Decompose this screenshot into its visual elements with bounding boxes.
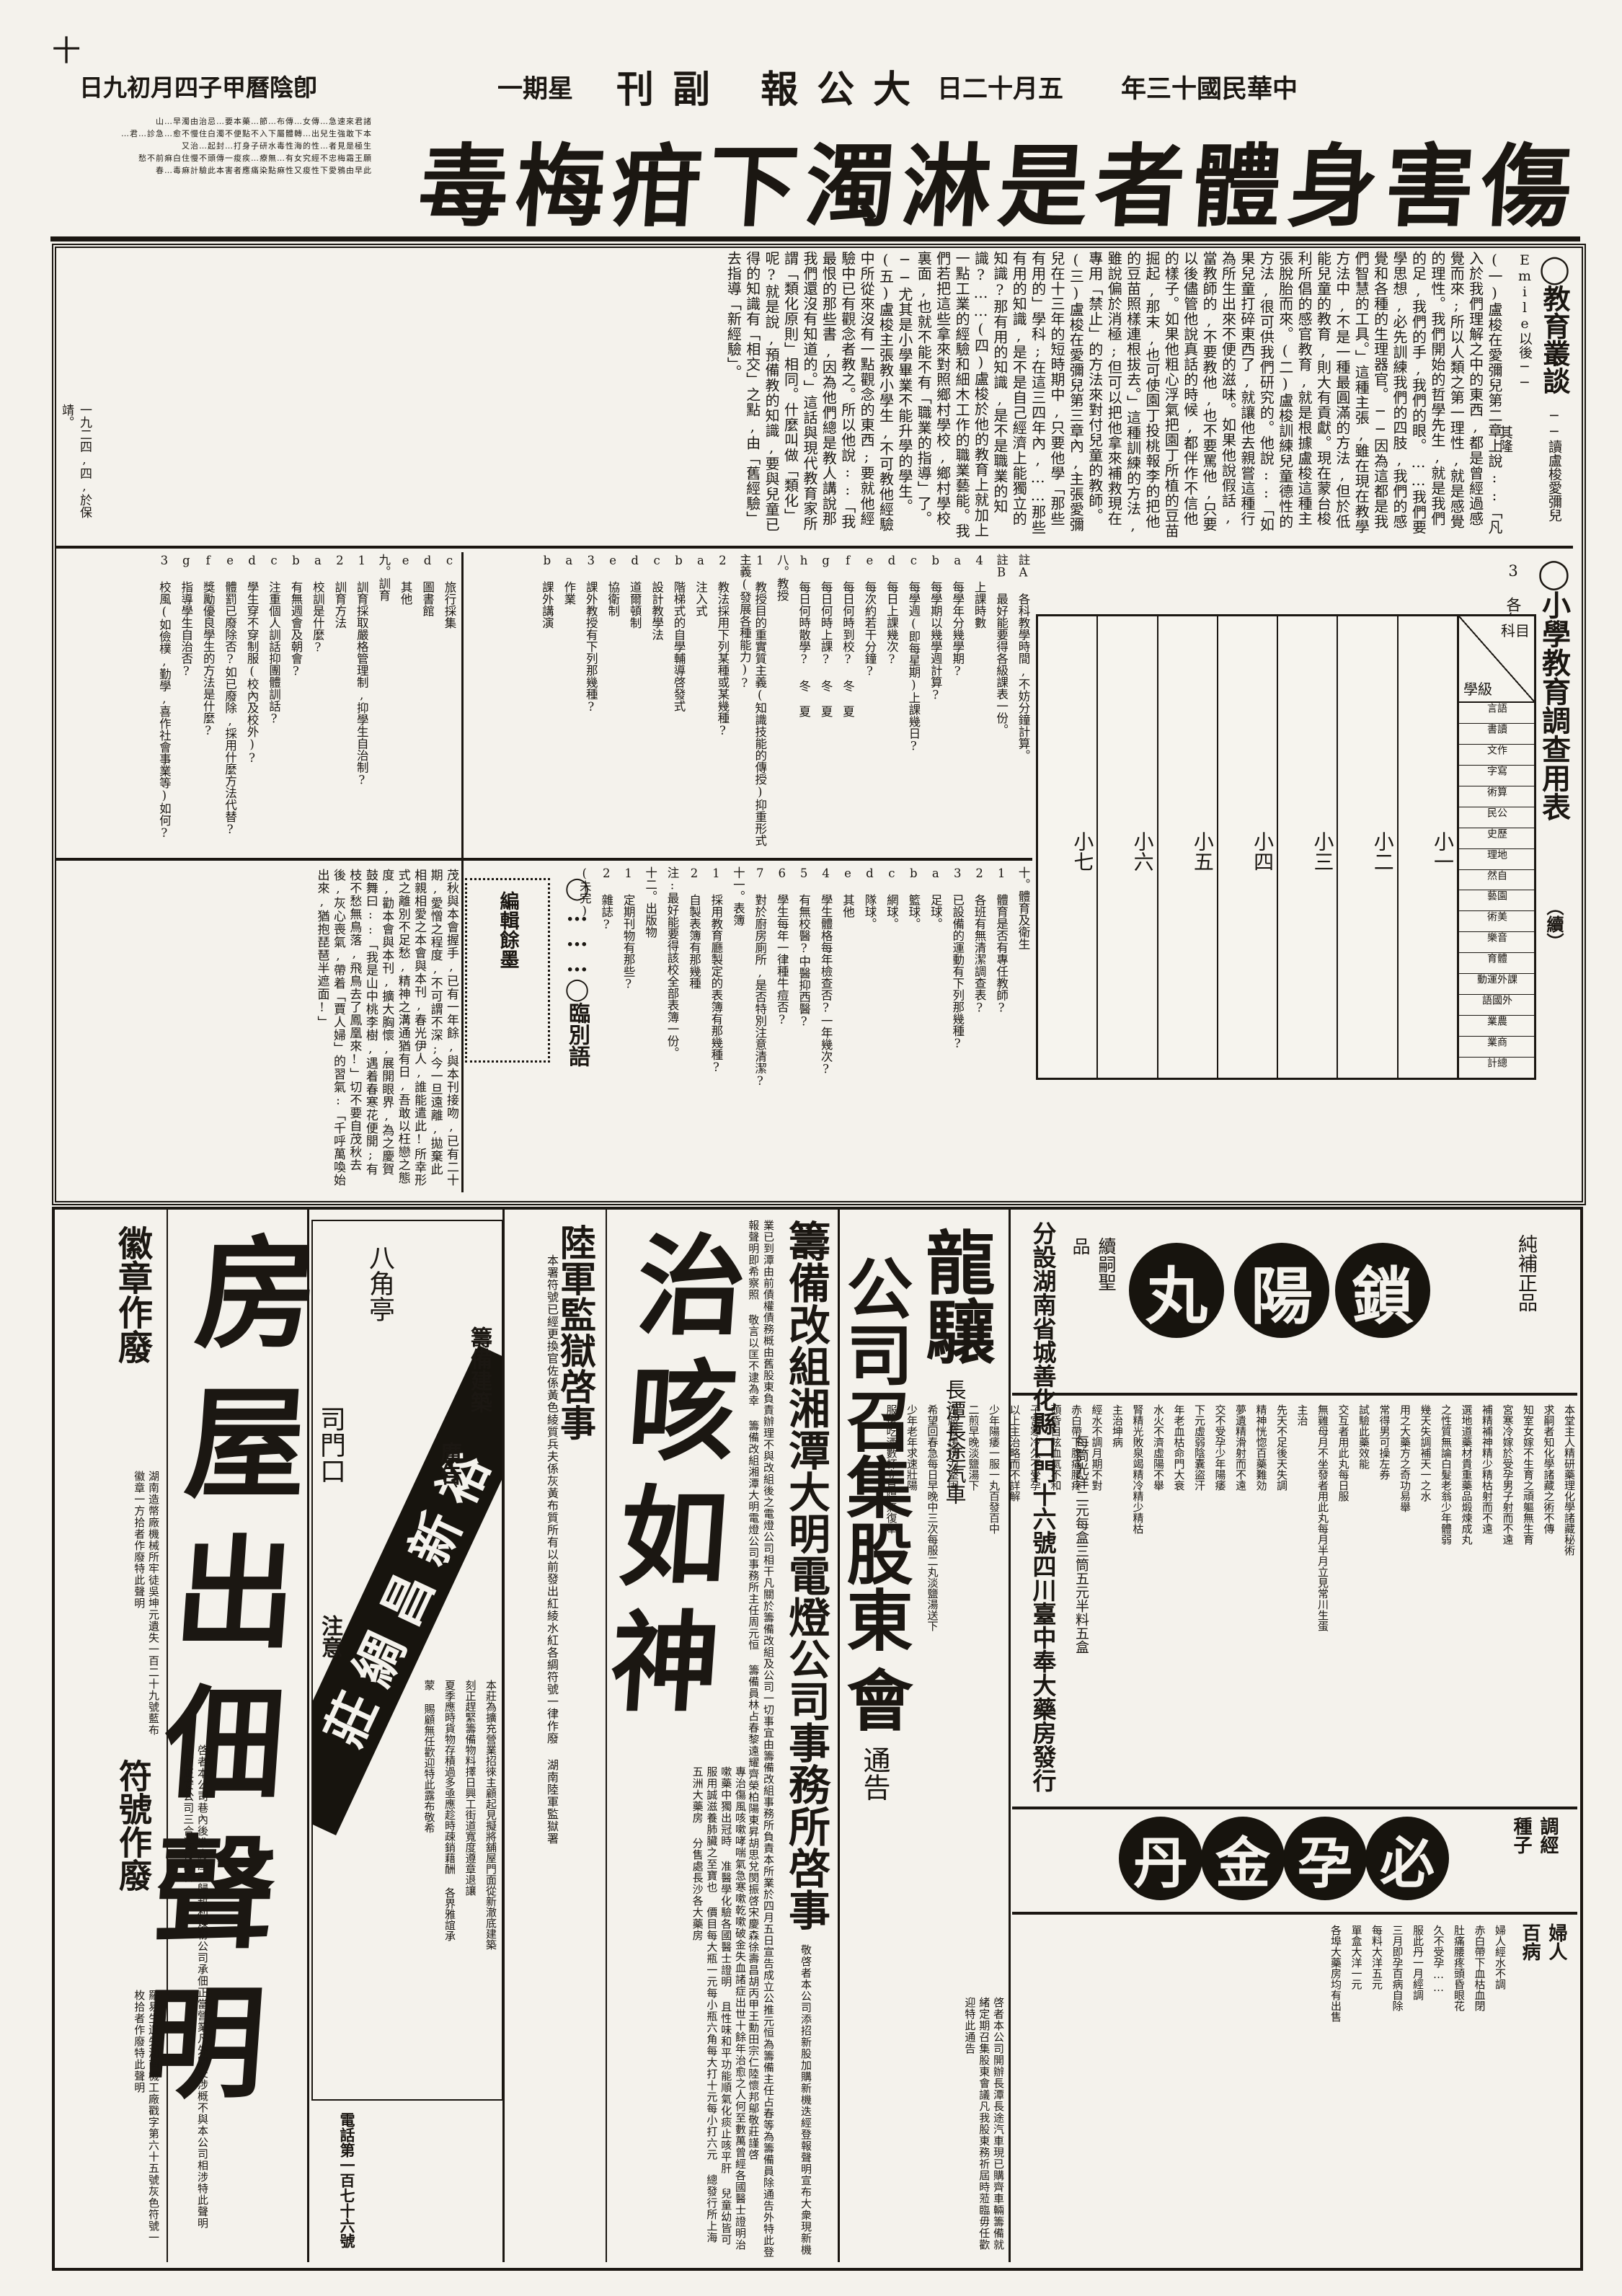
- question-line: 1 訓育採取嚴格管理制,抑學生自治制?: [354, 554, 369, 852]
- survey-title-text: ◯小學教育調查用表: [1537, 557, 1571, 821]
- biyun-circle-4: 丹: [1119, 1817, 1202, 1900]
- survey-table-subject-column: 科目 學級 語言讀書作文寫字算術公民歷史地理自然園藝美術音樂體育課外運動外國語農…: [1457, 616, 1534, 1078]
- badge-title: 徽章作廢: [114, 1225, 157, 1456]
- grade-column: 小四: [1217, 616, 1277, 1078]
- zhike-price: 價目每大瓶一元每小瓶六角每大打十元每小打六元: [705, 1907, 718, 2160]
- subject-cell: 音樂: [1459, 931, 1534, 952]
- question-line: e 每次約若干分鐘?: [862, 554, 877, 852]
- subject-cell: 美術: [1459, 910, 1534, 931]
- ad-text-column: 幾天失調補天一之水: [1418, 1404, 1432, 1799]
- longxiang-notice: 通告: [859, 1746, 890, 1801]
- biyun-circle-1: 必: [1365, 1817, 1449, 1900]
- ads-rule-2: [838, 1210, 840, 2262]
- question-line: b 課外講演: [539, 554, 554, 852]
- ad-text-column: 單盒大洋一元: [1349, 1925, 1363, 2256]
- zhike-body: 專治傷風咳嗽哮喘氣急寒嗽乾嗽破金失血諸症出世十餘年治愈之人何至數萬曾經各國醫士證…: [611, 1766, 747, 2251]
- question-line: 3 校風(如儉樸,勤學,喜作社會事業等)如何?: [156, 554, 172, 852]
- question-line: d 道爾頓制: [627, 554, 642, 852]
- subject-cell: 外國語: [1459, 994, 1534, 1015]
- question-line: 十。體育及衛生: [1016, 866, 1031, 1188]
- question-line: 2 各班有無清潔調查表?: [972, 866, 987, 1188]
- question-line: 2 雜誌?: [598, 866, 613, 1188]
- ad-text-column: 本莊為擴充營業招徠主顧起見擬將舖屋門面從新澈底建築: [484, 1680, 498, 2083]
- question-line: 6 學生每年一律種牛痘否?: [774, 866, 789, 1188]
- subject-cell: 自然: [1459, 869, 1534, 890]
- question-line: a 作業: [561, 554, 576, 852]
- prison-sign: 湖南陸軍監獄署: [545, 1759, 559, 1845]
- survey-cont: （續）: [1543, 898, 1564, 950]
- longxiang-title-left: 公司召集股東 會 通告: [842, 1254, 923, 1982]
- era-date: 中華民國十三年: [1121, 68, 1298, 105]
- suoyang-body: 本堂主人精研藥理化學諸藏秘術求嗣者知化學諸藏之術不傳知室女嫁不生育之頑軀無生育宮…: [1120, 1404, 1576, 1799]
- yuxinchang-right-label: 籌備建築: [467, 1326, 495, 1528]
- banner-bottom-rule: [50, 236, 1580, 241]
- ad-text-column: 服此丹一月經調: [1411, 1925, 1425, 2256]
- yuxinchang-loc-top: 八角亭: [369, 1244, 398, 1410]
- ad-text-column: 先天不足後天失調: [1275, 1404, 1289, 1799]
- suoyang-circle-2: 陽: [1234, 1243, 1329, 1338]
- subject-cell: 商業: [1459, 1036, 1534, 1057]
- question-line: 4 上課時數: [972, 554, 987, 852]
- question-line: b 有無週會及朝會?: [288, 554, 303, 852]
- ad-text-column: 交不受孕少年陽痿: [1213, 1404, 1227, 1799]
- column-rule-left: [461, 552, 464, 1192]
- question-line: 註A 各科教學時間,不妨分鐘計算。: [1016, 554, 1031, 852]
- pill-char: 必: [1380, 1819, 1435, 1898]
- lunar-date: 卽陰曆甲子四月初九日: [79, 68, 317, 103]
- pill-char: 丹: [1133, 1819, 1188, 1898]
- corner-label-grade: 學級: [1463, 678, 1492, 699]
- masthead: 大公報 副刊: [616, 59, 929, 113]
- question-line: 2 訓育方法: [332, 554, 347, 852]
- biyun-circle-2: 孕: [1283, 1817, 1367, 1900]
- question-line: c 網球。: [884, 866, 899, 1188]
- ad-text-column: 無雞母月不坐發者用此丸每月半月立見常川生蛋: [1316, 1404, 1330, 1799]
- subject-cell: 算術: [1459, 786, 1534, 807]
- ad-text-column: 本堂主人精研藥理化學諸藏秘術: [1562, 1404, 1577, 1799]
- article-title-block: ◯教育叢談 ──讀盧梭愛彌兒Emile以後── 其隆: [1508, 252, 1574, 541]
- ad-text-column: 主治坤病: [1110, 1404, 1125, 1799]
- subject-cell: 作文: [1459, 744, 1534, 765]
- suoyang-tag-left: 續嗣聖品: [1061, 1237, 1119, 1295]
- ad-text-column: 年老血枯命門大衰: [1171, 1404, 1186, 1799]
- question-line: h 每日何時散學? 冬 夏: [796, 554, 811, 852]
- yuxinchang-right-label2: 廣告: [440, 1442, 464, 1543]
- banner-side-ad-line: 愁不前痳白住慢不頭傳一痠疾…療無…有女究經不忠梅霜王願: [48, 152, 372, 164]
- newspaper-page: 十 卽陰曆甲子四月初九日 星期一 大公報 副刊 五月十二日 中華民國十三年 傷害…: [0, 0, 1622, 2296]
- question-line: 3 已設備的運動有下列那幾種?: [949, 866, 965, 1188]
- suoyang-price: 每筒光洋二元每盒三筒五元半料五盒: [1064, 1435, 1091, 1795]
- survey-title: ◯小學教育調查用表 （續）: [1531, 557, 1574, 1083]
- question-line: b 每學期以幾學週計算?: [928, 554, 943, 852]
- question-line: 1 體育是否有專任教師?: [993, 866, 1009, 1188]
- pill-char: 孕: [1298, 1819, 1352, 1898]
- article-date-sign: 一九二四,四,於保靖。: [72, 404, 94, 541]
- question-line: a 注入式: [693, 554, 708, 852]
- ad-text-column: 之性質無論白髮老翁少年體弱: [1439, 1404, 1453, 1799]
- ad-text-column: 求嗣者知化學諸藏之術不傳: [1541, 1404, 1556, 1799]
- survey-table: 科目 學級 語言讀書作文寫字算術公民歷史地理自然園藝美術音樂體育課外運動外國語農…: [1036, 614, 1536, 1080]
- question-line: 十二。出版物: [642, 866, 657, 1188]
- survey-table-subjects: 語言讀書作文寫字算術公民歷史地理自然園藝美術音樂體育課外運動外國語農業商業總計: [1459, 703, 1534, 1078]
- longxiang-subtitle: 長潭長途汽車: [942, 1379, 967, 1504]
- women-body: 婦人經水不調赤白帶下血枯血閉肚痛腰疼頭昏眼花久不受孕……服此丹一月經調三月即孕百…: [1016, 1925, 1507, 2256]
- subject-cell: 園藝: [1459, 890, 1534, 910]
- ad-text-column: 夏季應時貨物存積過多亟應趁時疎銷藉酬 各界雅誼承: [443, 1680, 457, 2083]
- question-line: c 旅行採集: [442, 554, 457, 852]
- corner-label-subject: 科目: [1501, 619, 1530, 640]
- ad-text-column: 選地道藥材貴重藥品煅煉成丸: [1459, 1404, 1473, 1799]
- yuxinchang-phone: 電話第一百七十六號: [320, 2112, 358, 2256]
- longxiang-body: 啓者本公司開辦長潭長途汽車現已購齊車輛籌備就緒定期召集股東會議凡我股東務祈屆時蒞…: [842, 1997, 1005, 2256]
- ad-text-column: 精神恍惚百藥難効: [1254, 1404, 1268, 1799]
- question-line: g 指導學生自治否?: [178, 554, 193, 852]
- pill-char: 鎖: [1352, 1246, 1414, 1336]
- grade-column: 小三: [1277, 616, 1337, 1078]
- ad-text-column: 每料大洋五元: [1370, 1925, 1384, 2256]
- question-line: a 每學年分幾學期?: [949, 554, 965, 852]
- banner-side-ad-text: 山…早濁由治忌…要本藥…節…布傳…女傳…急速來君諸君…診急…愈不慢住白濁不便點不…: [48, 115, 372, 234]
- ad-text-column: 下元虛弱陰囊盜汗: [1192, 1404, 1207, 1799]
- longxiang-title3: 會: [836, 1666, 913, 1732]
- ad-text-column: 腎精光敗泉竭精冷精少精枯: [1130, 1404, 1145, 1799]
- ad-text-column: 蒙 賜顧無任歡迎特此露布敬希: [422, 1680, 436, 2083]
- subject-cell: 歷史: [1459, 828, 1534, 848]
- question-line: 1 採用教育廳製定的表簿有那幾種?: [708, 866, 723, 1188]
- prison-body-text: 本署符號已經更換官佐係黃色綾質兵夫係灰黃布質所有以前發出紅綾水紅各綢符號一律作廢: [545, 1254, 559, 1745]
- question-line: c 注重個人訓話抑團體訓話?: [266, 554, 281, 852]
- prison-body: 本署符號已經更換官佐係黃色綾質兵夫係灰黃布質所有以前發出紅綾水紅各綢符號一律作廢…: [508, 1254, 559, 1903]
- banner-side-ad-line: 山…早濁由治忌…要本藥…節…布傳…女傳…急速來君諸: [48, 115, 372, 128]
- questions-right: 註A 各科教學時間,不妨分鐘計算。註B 最好能要得各級課表一份。4 上課時數a …: [466, 554, 1031, 852]
- ad-text-column: 主治: [1295, 1404, 1309, 1799]
- grade-column: 小二: [1337, 616, 1396, 1078]
- survey-table-grade-columns: 小一小二小三小四小五小六小七: [1038, 616, 1457, 1078]
- subject-cell: 課外運動: [1459, 973, 1534, 994]
- biyun-rule-top: [1012, 1807, 1577, 1809]
- longxiang-title-right: 龍驤 長潭長途汽車: [924, 1227, 1005, 1919]
- suoyang-tag-right: 純補正品: [1507, 1234, 1540, 1349]
- editor-notes-label: 編輯餘墨: [494, 891, 522, 1050]
- question-line: 3 課外教授有下列那幾種?: [583, 554, 598, 852]
- band-rule-2: [56, 858, 1032, 861]
- fuhao-title: 符號作廢: [114, 1759, 157, 1975]
- question-line: a 校訓是什麼?: [310, 554, 325, 852]
- question-line: f 獎勵優良學生的方法是什麼?: [200, 554, 216, 852]
- question-line: b 籃球。: [905, 866, 921, 1188]
- prison-title: 陸軍監獄啓事: [561, 1224, 601, 1556]
- article-title: ◯教育叢談: [1538, 252, 1571, 394]
- banner-side-ad-line: 春…毒痳計驗此本害者應痛染點痳性又痠性下愛鴉由早此: [48, 164, 372, 177]
- ad-text-column: 交互者用此丸每日服: [1336, 1404, 1350, 1799]
- banner-side-ad-line: 君…診急…愈不慢住白濁不便點不入下屬體轉…出兒生強敢下本…: [48, 128, 372, 140]
- farewell-title: ◯………◯臨別語: [552, 876, 593, 1179]
- banner-side-ad-line: 又治…起封…打身子研水毒性海的性…者見是極生: [48, 140, 372, 152]
- question-line: d 圖書館: [420, 554, 435, 852]
- daming-title: 籌備改組湘潭大明電燈公司事務所啓事: [781, 1220, 830, 1931]
- ad-text-column: 肚痛腰疼頭昏眼花: [1452, 1925, 1466, 2256]
- ads-rule-1: [1009, 1210, 1011, 2262]
- question-line: d 每日上課幾次?: [884, 554, 899, 852]
- ad-text-column: 三月即孕百病自除: [1390, 1925, 1404, 2256]
- ad-text-column: 久不受孕……: [1431, 1925, 1445, 2256]
- question-line: c 設計教學法: [649, 554, 664, 852]
- question-line: 注:最好能要得該校全部表簿一份。: [665, 866, 680, 1188]
- question-line: 1 教授目的重實質主義(知識技能的傳授)抑重形式主義(發展各種能力)?: [737, 554, 768, 852]
- question-line: c 每學週(即每星期)上課幾日?: [905, 554, 921, 852]
- question-line: 九。訓育: [376, 554, 391, 852]
- editor-notes-box: 編輯餘墨: [465, 878, 550, 1063]
- ad-text-column: 宮寒冷嫁於受孕男子射而不遠: [1500, 1404, 1515, 1799]
- biyun-circle-3: 金: [1201, 1817, 1285, 1900]
- ad-text-column: 知室女嫁不生育之頑軀無生育: [1521, 1404, 1535, 1799]
- question-line: 2 自製表簿有那幾種: [686, 866, 701, 1188]
- question-line: a 足球。: [928, 866, 943, 1188]
- suoyang-circle-3: 丸: [1129, 1243, 1224, 1338]
- question-line: 5 有無校醫?中醫抑西醫?: [796, 866, 811, 1188]
- longxiang-name: 龍驤: [914, 1227, 996, 1365]
- band-rule-1: [56, 546, 1573, 549]
- question-line: e 其他: [398, 554, 413, 852]
- subject-cell: 體育: [1459, 952, 1534, 973]
- subject-cell: 讀書: [1459, 723, 1534, 744]
- badge-body: 湖南造幣廠機械所牢徒吳坤元遺失一百二十九號藍布徽章一方拾者作廢特此聲明: [110, 1471, 160, 1745]
- question-line: 十一。表簿: [730, 866, 745, 1188]
- ad-text-column: 婦人經水不調: [1493, 1925, 1507, 2256]
- subject-cell: 農業: [1459, 1015, 1534, 1036]
- pill-char: 丸: [1145, 1246, 1207, 1336]
- question-line: e 協衛制: [605, 554, 620, 852]
- ads-rule-6: [167, 1210, 168, 2262]
- weekday: 星期一: [497, 68, 573, 105]
- pill-char: 金: [1215, 1819, 1270, 1898]
- questions-left: c 旅行採集d 圖書館e 其他九。訓育1 訓育採取嚴格管理制,抑學生自治制?2 …: [65, 554, 457, 852]
- ad-text-column: 赤白帶下血枯血閉: [1472, 1925, 1486, 2256]
- ad-text-column: 各埠大藥房均有出售: [1329, 1925, 1343, 2256]
- ad-text-column: 試驗此藥效能: [1357, 1404, 1371, 1799]
- yuxinchang-body: 本莊為擴充營業招徠主顧起見擬將舖屋門面從新澈底建築刻正趕緊籌備物料擇日興工街道寬…: [365, 1680, 497, 2083]
- ad-text-column: 夢遺精滑射而不遠: [1233, 1404, 1248, 1799]
- grade-column: 小五: [1157, 616, 1217, 1078]
- yuxinchang-attention: 注意: [319, 1615, 345, 1701]
- suoyang-circle-1: 鎖: [1335, 1243, 1430, 1338]
- longxiang-title2: 公司召集股東: [836, 1254, 913, 1652]
- ad-text-column: 刻正趕緊籌備物料擇日興工街道寬度遵章退讓: [463, 1680, 477, 2083]
- question-line: 1 定期刊物有那些?: [621, 866, 636, 1188]
- question-line: g 每日何時上課? 冬 夏: [818, 554, 833, 852]
- daming-ad: 籌備改組湘潭大明電燈公司事務所啓事 敬啓者本公司添招新股加購新機迭經登報聲明宣布…: [750, 1220, 836, 2261]
- subject-cell: 地理: [1459, 848, 1534, 869]
- ads-rule-3: [606, 1210, 607, 2262]
- subject-cell: 公民: [1459, 807, 1534, 828]
- ad-text-column: 補精補神精少精枯射而不遠: [1480, 1404, 1494, 1799]
- biyun-rule-bottom: [1012, 1912, 1577, 1915]
- issue-date: 五月十二日: [937, 68, 1063, 105]
- suoyang-distributor: 分設湖南省城善化縣口門十六號四川臺中奉大藥房發行: [1015, 1221, 1060, 1807]
- question-line: 2 教法採用下列某種或某幾種?: [714, 554, 730, 852]
- question-line: d 學生穿不穿制服(校內及校外)?: [244, 554, 260, 852]
- question-line: e 其他: [840, 866, 855, 1188]
- question-line: 八。教授: [774, 554, 789, 852]
- grade-column: 小一: [1397, 616, 1457, 1078]
- question-line: b 階梯式的自學輔導啓發式: [671, 554, 686, 852]
- ad-text-column: 水火不濟虛陽不舉: [1151, 1404, 1166, 1799]
- grade-column: 小六: [1096, 616, 1156, 1078]
- subject-cell: 語言: [1459, 703, 1534, 723]
- question-line: 7 對於廚房廁所,是否特別注意清潔?: [752, 866, 767, 1188]
- women-label: 婦人百病: [1515, 1923, 1570, 1978]
- banner-headline: 傷害身體者是淋濁下疳梅毒: [371, 114, 1584, 244]
- pill-char: 陽: [1251, 1246, 1313, 1336]
- subject-cell: 寫字: [1459, 765, 1534, 786]
- question-line: e 體罰已廢除否?如已廢除,採用什麼方法代替?: [222, 554, 237, 852]
- house-sign: 日商正安公司三合洋行同啓: [182, 1745, 195, 1883]
- house-body: 啓者本公司巷內後進房屋已歸新利煤粉公司承佃正當營業凡外間交涉概不與本公司相涉特此…: [172, 1745, 209, 2249]
- questions-band3: 十。體育及衛生1 體育是否有專任教師?2 各班有無清潔調查表?3 已設備的運動有…: [598, 866, 1031, 1188]
- house-body-text: 啓者本公司巷內後進房屋已歸新利煤粉公司承佃正當營業凡外間交涉概不與本公司相涉特此…: [196, 1745, 209, 2229]
- article-body: (一)盧梭在愛彌兒第二章上說::「凡入於我們理解之中的東西,都是曾經過感覺而來;…: [65, 251, 1504, 541]
- biyun-label: 調經種子: [1505, 1817, 1561, 1869]
- ad-text-column: 用之大藥方之奇功易舉: [1398, 1404, 1412, 1799]
- question-line: 4 學生體格每年檢查否?一年幾次?: [818, 866, 833, 1188]
- grade-column: 小七: [1038, 616, 1096, 1078]
- ad-text-column: 常得男可操左券: [1377, 1404, 1391, 1799]
- registration-cross-icon: 十: [52, 27, 81, 69]
- subject-cell: 總計: [1459, 1057, 1534, 1078]
- question-line: 註B 最好能要得各級課表一份。: [993, 554, 1009, 852]
- fuhao-body: 羅易生遺失湖南機工廠戳字第六十五號灰色符號一枚拾者作廢特此聲明: [110, 1990, 160, 2249]
- farewell-body: 茂秋與本會握手,已有一年餘,與本刊接吻,已有二十期,愛憎之程度,不可謂不深;今一…: [66, 869, 459, 1187]
- question-line: f 每日何時到校? 冬 夏: [840, 554, 855, 852]
- suoyang-rule: [1012, 1393, 1577, 1396]
- survey-table-corner-cell: 科目 學級: [1459, 616, 1534, 703]
- question-line: d 隊球。: [862, 866, 877, 1188]
